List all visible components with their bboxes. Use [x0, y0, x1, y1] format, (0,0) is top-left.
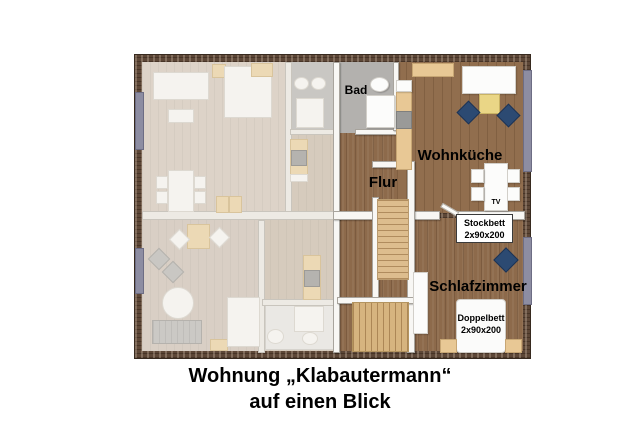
chair	[216, 196, 229, 213]
chair	[156, 176, 168, 189]
schlafzimmer-room-label: Schlafzimmer	[414, 278, 542, 295]
caption-line-1: Wohnung „Klabautermann“	[0, 363, 640, 389]
nightstand	[505, 339, 522, 353]
faded-bad-wall	[290, 129, 336, 135]
toilet	[294, 77, 309, 90]
chair	[507, 187, 520, 201]
shower	[294, 306, 324, 332]
flur-room-label: Flur	[355, 174, 411, 191]
divider-wall-lower	[333, 218, 340, 353]
window-right-upper	[523, 70, 532, 172]
kitchen-sink	[290, 174, 308, 182]
stove	[291, 150, 307, 166]
chair	[194, 191, 206, 204]
stove	[396, 111, 412, 129]
sofa	[152, 320, 202, 344]
nightstand	[440, 339, 457, 353]
staircase-lower	[352, 302, 409, 352]
table	[187, 224, 210, 249]
chair	[471, 187, 484, 201]
tv-label: TV	[484, 199, 508, 206]
shower	[366, 95, 395, 128]
coffee-table	[168, 109, 194, 123]
double-bed-label: Doppelbett 2x90x200	[457, 300, 505, 336]
washbasin	[311, 77, 326, 90]
faded-bath-wall	[262, 299, 339, 306]
double-bed: Doppelbett 2x90x200	[456, 299, 506, 353]
sofa	[153, 72, 209, 100]
window-left-upper	[135, 92, 144, 150]
wohnkueche-room-label: Wohnküche	[405, 147, 515, 164]
cabinet	[251, 63, 273, 77]
shower	[296, 98, 324, 128]
bed	[227, 297, 260, 347]
chair	[229, 196, 242, 213]
chair	[471, 169, 484, 183]
chair	[507, 169, 520, 183]
staircase-upper	[377, 199, 409, 280]
chair	[194, 176, 206, 189]
window-left-lower	[135, 248, 144, 294]
bunk-bed: Stockbett 2x90x200	[456, 214, 513, 243]
side-table	[210, 339, 228, 351]
bunk-bed-label: Stockbett 2x90x200	[457, 215, 512, 241]
floorplan-image: TV Stockbett 2x90x200 Doppelbett 2x90x20…	[0, 0, 640, 427]
dining-table	[168, 170, 194, 212]
round-table	[162, 287, 194, 319]
stove	[304, 270, 320, 287]
caption: Wohnung „Klabautermann“ auf einen Blick	[0, 363, 640, 415]
sideboard	[412, 63, 454, 77]
kitchen-sink	[396, 80, 412, 92]
toilet	[267, 329, 284, 344]
sofa	[462, 66, 516, 94]
coffee-table	[479, 94, 500, 114]
bad-room-label: Bad	[330, 83, 382, 97]
caption-line-2: auf einen Blick	[0, 389, 640, 415]
washbasin	[302, 332, 318, 345]
chair	[156, 191, 168, 204]
